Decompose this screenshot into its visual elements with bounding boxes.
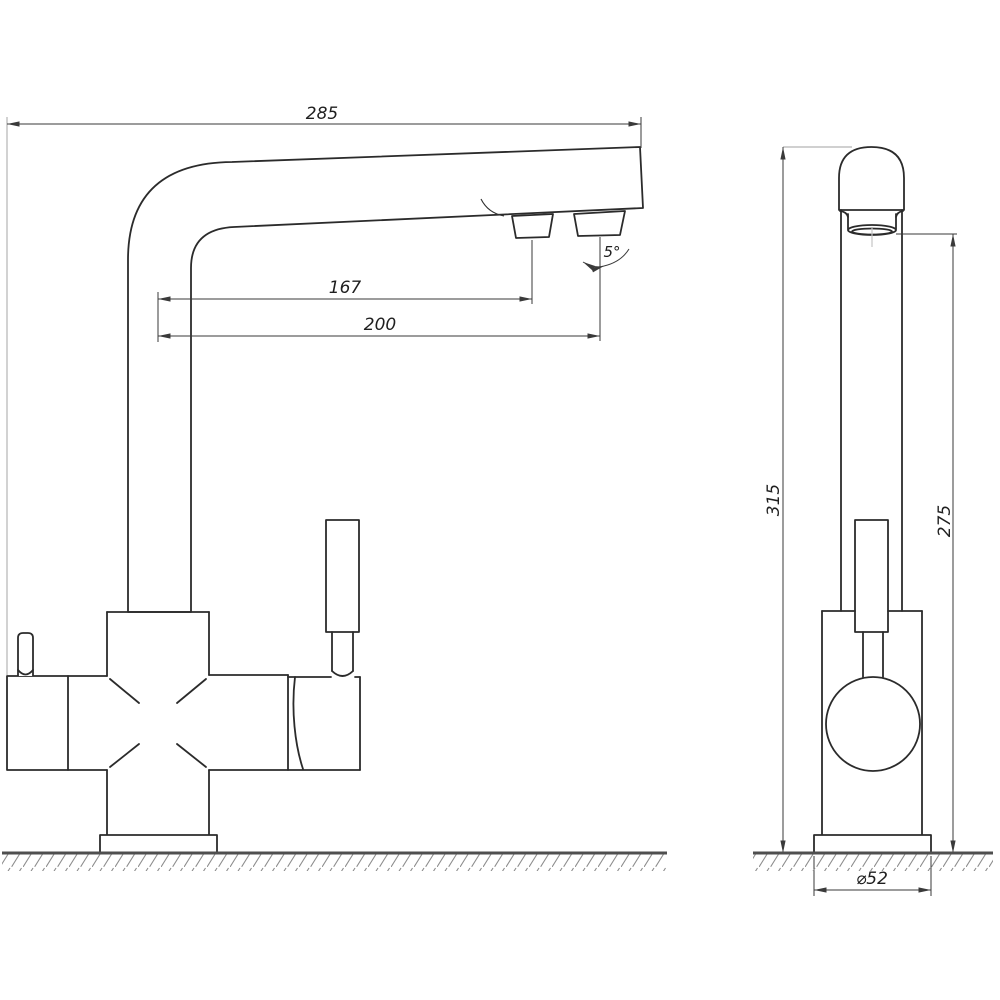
cross-diagonal-tl [110,679,139,703]
right-lever-stem-arc [332,671,353,676]
side-view: 285 167 200 5° [7,104,643,853]
dim-label-167: 167 [329,278,362,298]
spout-outline [128,147,643,612]
right-lever [326,520,359,632]
nozzle-2 [574,211,625,236]
ground-hatch-left [2,854,667,871]
dim-label-5deg: 5° [603,243,620,261]
faucet-technical-drawing: 285 167 200 5° [0,0,1000,1000]
dim-label-285: 285 [306,104,338,124]
dome-cap [839,147,904,210]
ground [2,853,993,871]
cross-diagonal-br [177,744,206,767]
dim-label-315: 315 [764,484,784,516]
dim-label-d52: ⌀52 [856,869,888,889]
nozzle-1 [512,214,553,238]
angle-arc-5deg [583,262,604,267]
side-base-plate [100,835,217,853]
front-handle [855,520,888,632]
ball-joint-circle [826,677,920,771]
left-arm-outline [7,676,107,770]
right-box-joint-curve [293,677,303,769]
left-lever [18,633,33,676]
front-view: 315 275 ⌀52 [764,147,957,896]
front-base-plate [814,835,931,853]
cross-diagonal-tr [177,679,206,703]
ground-hatch-right [753,854,993,871]
technical-drawing-canvas: 285 167 200 5° [0,0,1000,1000]
cross-diagonal-bl [110,744,139,767]
dim-label-275: 275 [935,505,955,537]
dim-label-200: 200 [364,315,396,335]
right-lever-stem [332,632,353,671]
front-handle-stem [863,632,883,677]
